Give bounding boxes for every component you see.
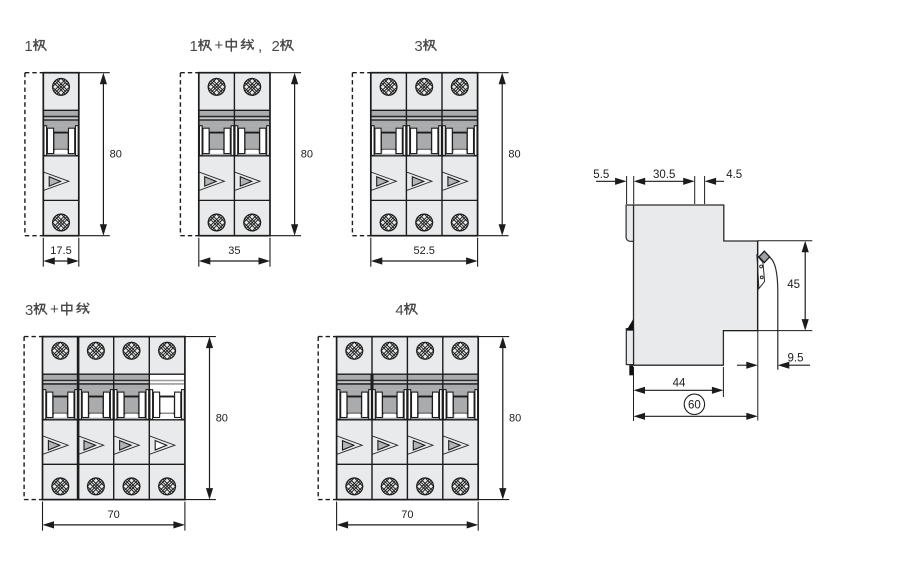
svg-text:9.5: 9.5: [788, 353, 804, 365]
svg-text:17.5: 17.5: [50, 245, 71, 257]
svg-text:,: ,: [258, 38, 262, 55]
svg-text:70: 70: [401, 509, 413, 521]
svg-text:80: 80: [301, 149, 313, 161]
svg-text:80: 80: [508, 149, 520, 161]
svg-text:52.5: 52.5: [413, 245, 434, 257]
svg-text:4: 4: [395, 302, 403, 319]
svg-text:44: 44: [673, 378, 686, 390]
svg-text:80: 80: [509, 412, 521, 424]
svg-text:+: +: [50, 301, 59, 318]
svg-text:30.5: 30.5: [653, 169, 675, 181]
svg-text:4.5: 4.5: [726, 169, 742, 181]
svg-text:60: 60: [688, 399, 701, 411]
svg-text:+: +: [215, 37, 224, 54]
svg-text:1: 1: [190, 38, 198, 55]
svg-text:35: 35: [228, 245, 240, 257]
svg-text:80: 80: [216, 412, 228, 424]
svg-text:3: 3: [414, 38, 422, 55]
svg-text:1: 1: [24, 38, 32, 55]
svg-text:5.5: 5.5: [593, 169, 609, 181]
svg-text:80: 80: [110, 149, 122, 161]
svg-text:2: 2: [272, 38, 280, 55]
svg-text:3: 3: [25, 302, 33, 319]
svg-text:70: 70: [108, 509, 120, 521]
svg-text:45: 45: [787, 279, 800, 291]
